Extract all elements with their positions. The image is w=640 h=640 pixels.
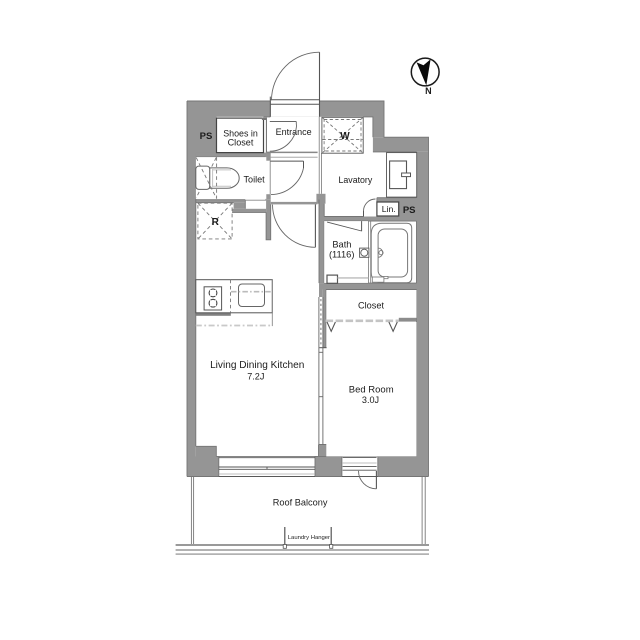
svg-text:PS: PS: [403, 205, 416, 216]
svg-text:3.0J: 3.0J: [362, 395, 379, 405]
svg-text:(1116): (1116): [329, 249, 355, 259]
svg-text:Laundry Hanger: Laundry Hanger: [288, 535, 330, 541]
svg-text:W: W: [340, 131, 350, 142]
svg-text:7.2J: 7.2J: [247, 371, 264, 381]
svg-text:Toilet: Toilet: [243, 175, 265, 185]
svg-text:Living Dining Kitchen: Living Dining Kitchen: [210, 360, 304, 371]
svg-text:Entrance: Entrance: [276, 127, 312, 137]
svg-text:Bath: Bath: [332, 240, 351, 250]
svg-text:Lavatory: Lavatory: [339, 175, 373, 185]
svg-text:Lin.: Lin.: [382, 204, 396, 214]
svg-text:Bed Room: Bed Room: [349, 384, 394, 395]
svg-text:Closet: Closet: [358, 301, 384, 311]
svg-text:Roof Balcony: Roof Balcony: [273, 498, 328, 508]
svg-text:Closet: Closet: [228, 138, 254, 148]
svg-text:N: N: [425, 86, 432, 96]
svg-text:R: R: [212, 217, 220, 228]
svg-text:PS: PS: [200, 131, 213, 142]
